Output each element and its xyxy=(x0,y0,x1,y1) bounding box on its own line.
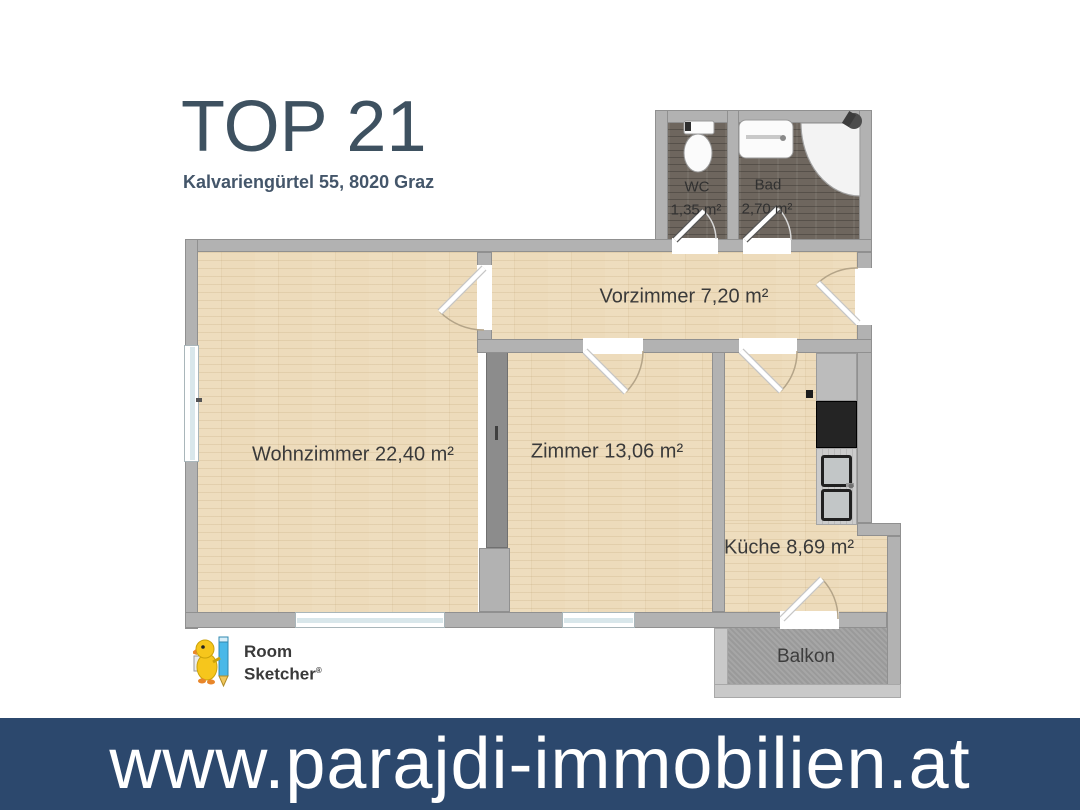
wall-right-jog xyxy=(857,523,901,536)
window-bottom-zimmer xyxy=(562,612,635,628)
label-wohnzimmer: Wohnzimmer 22,40 m² xyxy=(252,444,454,467)
wall-wohnzimmer-vorzimmer xyxy=(477,252,492,340)
website-banner: www.parajdi-immobilien.at xyxy=(0,718,1080,810)
window-left xyxy=(184,345,199,462)
window-glass xyxy=(297,618,443,623)
kitchen-sink-basin-top xyxy=(821,455,852,487)
page: { "header": { "title": "TOP 21", "subtit… xyxy=(0,0,1080,810)
wall-wcbad-left xyxy=(655,110,668,240)
label-bad-name: Bad xyxy=(755,177,782,194)
label-wc-name: WC xyxy=(685,179,710,196)
wall-zimmer-kueche xyxy=(712,352,725,612)
kitchen-counter xyxy=(816,353,857,401)
label-kueche: Küche 8,69 m² xyxy=(724,537,854,560)
wall-top xyxy=(185,239,872,252)
kitchen-sink-basin-bottom xyxy=(821,489,852,521)
label-bad-area: 2,70 m² xyxy=(742,201,793,218)
roomsketcher-line2: Sketcher® xyxy=(244,661,322,684)
room-wohnzimmer-floor xyxy=(198,252,478,612)
wall-shaft xyxy=(486,351,508,548)
floor-plan: Wohnzimmer 22,40 m² Zimmer 13,06 m² Vorz… xyxy=(0,0,1080,718)
window-glass xyxy=(564,618,633,623)
roomsketcher-icon xyxy=(193,636,235,688)
stove-icon xyxy=(816,401,857,448)
wall-wcbad-right xyxy=(859,110,872,240)
wall-wcbad-top xyxy=(655,110,872,123)
wall-bottom xyxy=(185,612,887,628)
room-zimmer-floor xyxy=(508,352,712,612)
wall-wc-bad-divider xyxy=(727,110,739,240)
wall-balkon-bottom xyxy=(714,684,901,698)
label-zimmer: Zimmer 13,06 m² xyxy=(531,441,683,464)
label-balkon: Balkon xyxy=(777,646,835,668)
window-glass xyxy=(190,347,195,460)
wall-vorzimmer-bottom xyxy=(477,339,872,353)
wall-right-lower xyxy=(887,536,901,698)
roomsketcher-logo: Room Sketcher® xyxy=(193,636,322,688)
roomsketcher-line1: Room xyxy=(244,642,322,661)
wall-right-upper xyxy=(857,252,872,523)
label-wc-area: 1,35 m² xyxy=(671,202,722,219)
wall-wohnzimmer-zimmer-lower xyxy=(479,548,510,612)
window-bottom-wohnzimmer xyxy=(295,612,445,628)
roomsketcher-text: Room Sketcher® xyxy=(244,636,322,684)
website-url: www.parajdi-immobilien.at xyxy=(109,723,970,805)
label-vorzimmer: Vorzimmer 7,20 m² xyxy=(600,286,769,309)
registered-mark: ® xyxy=(316,666,322,675)
